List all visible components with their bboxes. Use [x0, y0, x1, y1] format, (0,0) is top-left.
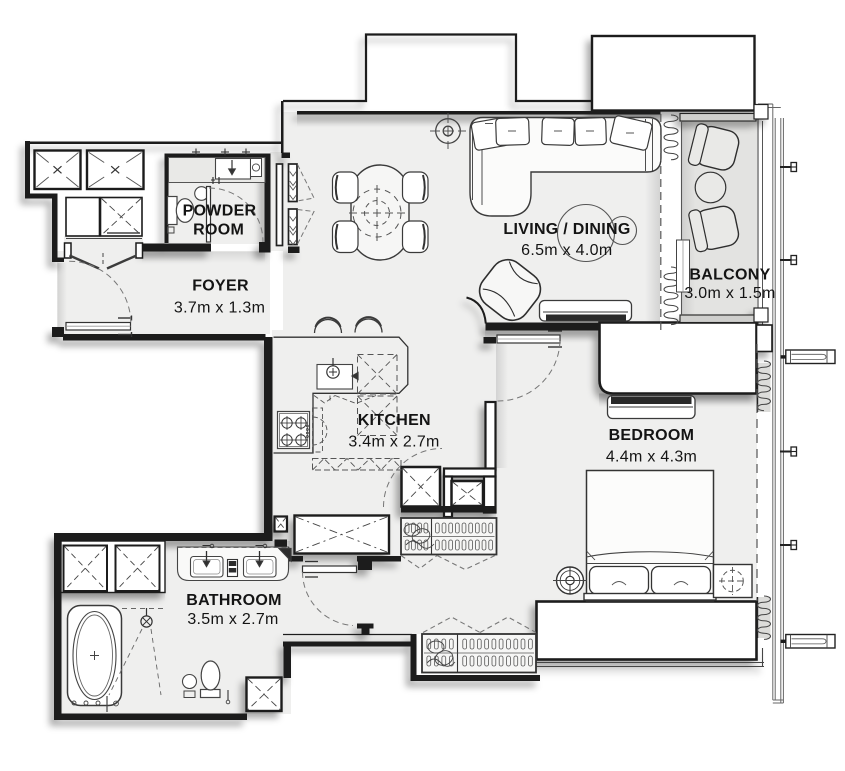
svg-text:LIVING / DINING: LIVING / DINING [503, 221, 630, 238]
svg-text:BEDROOM: BEDROOM [609, 427, 695, 444]
svg-text:FOYER: FOYER [192, 278, 249, 295]
svg-text:3.4m x 2.7m: 3.4m x 2.7m [348, 433, 439, 450]
svg-text:POWDER: POWDER [183, 202, 257, 219]
svg-text:6.5m x 4.0m: 6.5m x 4.0m [521, 242, 612, 259]
svg-text:3.0m x 1.5m: 3.0m x 1.5m [684, 285, 775, 302]
svg-text:4.4m x 4.3m: 4.4m x 4.3m [606, 449, 697, 466]
svg-text:BALCONY: BALCONY [689, 266, 770, 283]
svg-text:ROOM: ROOM [193, 222, 244, 239]
svg-text:3.5m x 2.7m: 3.5m x 2.7m [187, 611, 278, 628]
svg-text:3.7m x 1.3m: 3.7m x 1.3m [174, 299, 265, 316]
svg-text:BATHROOM: BATHROOM [186, 592, 281, 609]
svg-text:KITCHEN: KITCHEN [358, 412, 431, 429]
